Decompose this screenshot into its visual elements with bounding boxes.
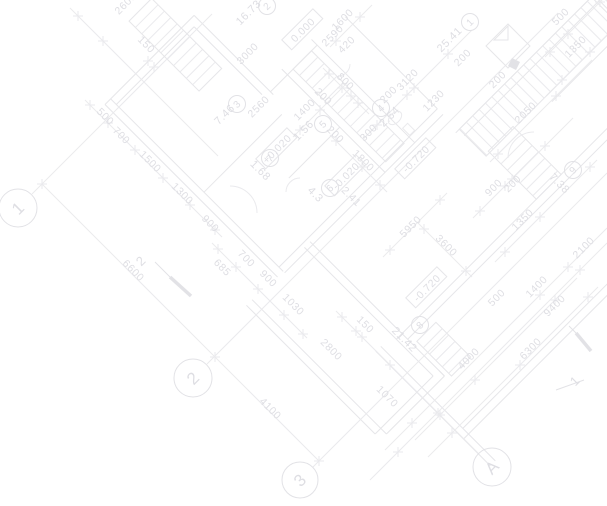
dimension-label: 6300 (518, 336, 545, 363)
plan-line (304, 247, 433, 376)
plan-line (370, 243, 607, 480)
room-area: 7.38 (546, 171, 571, 196)
grid-bubble-label: 1 (8, 198, 29, 219)
plan-line (105, 105, 278, 278)
dimension-ticks (37, 0, 605, 466)
dimension-label: 200 (502, 173, 524, 195)
plan-line (485, 103, 512, 130)
plan-line (466, 122, 493, 149)
elevation-value: 0.000 (289, 16, 318, 45)
elevation-mark: -0.720 (406, 267, 447, 308)
plan-line (526, 165, 551, 190)
plan-line (174, 43, 197, 66)
room-number: 1 (465, 17, 477, 29)
dimension-label: 9400 (542, 293, 569, 320)
dimension-label: 4100 (257, 396, 284, 423)
plan-line (170, 277, 191, 296)
dimension-label: 200 (452, 47, 474, 69)
elevation-mark: 0.000 (282, 9, 323, 50)
plan-line (479, 109, 506, 136)
shaft-flag-icon (494, 26, 508, 40)
plan-line (507, 146, 532, 171)
dimension-label: 3000 (235, 41, 262, 68)
dimension-label: 500 (550, 6, 572, 28)
plan-line (180, 49, 203, 72)
door-arc (508, 132, 534, 158)
rotated-plan-group (46, 0, 607, 506)
elevation-value: -0.720 (400, 143, 432, 175)
stair-hatching (459, 0, 607, 156)
plan-line (212, 243, 307, 338)
dimension-label: 900 (199, 213, 221, 235)
plan-line (463, 199, 607, 428)
plan-line (581, 8, 607, 35)
plan-line (32, 14, 212, 194)
room-area: 1.56 (291, 118, 316, 143)
plan-line (155, 262, 170, 277)
plan-line (428, 287, 598, 457)
elevation-value: -0.720 (411, 272, 443, 304)
door-arc (286, 178, 300, 192)
dimension-label: 1300 (169, 181, 196, 208)
plan-line (517, 71, 544, 98)
dimension-label: 900 (257, 268, 279, 290)
dimension-label: 1500 (137, 149, 164, 176)
blueprint-canvas: 2115026005007001500130090066004100685700… (0, 0, 607, 506)
floor-plan-drawing: 2115026005007001500130090066004100685700… (0, 0, 607, 506)
dimension-label: 2560 (246, 94, 273, 121)
elevation-marks: 0.000+0.020-0.020-0.720-0.720 (256, 9, 447, 308)
dimension-label: 1230 (421, 88, 448, 115)
door-arc (230, 186, 257, 213)
room-number: 9 (568, 165, 580, 177)
plan-line (246, 305, 375, 434)
room-area: 25.41 (435, 25, 465, 55)
plan-line (494, 0, 607, 148)
dimension-label: 1070 (374, 384, 401, 411)
dimension-lines (42, 0, 607, 480)
plan-line (524, 65, 551, 92)
dimension-label: 900 (483, 177, 505, 199)
plan-line (148, 18, 171, 41)
plan-line (473, 116, 500, 143)
dimension-label: 500 (94, 106, 116, 128)
plan-line (473, 118, 573, 218)
dimension-label: 5950 (398, 214, 425, 241)
dimension-label: 1350 (510, 207, 537, 234)
plan-line (576, 333, 591, 351)
grid-bubble-label: 3 (290, 470, 311, 491)
room-area: 16.73 (234, 0, 264, 28)
dimension-label: 3600 (433, 233, 460, 260)
shaft-marker-icon (508, 58, 520, 70)
dimension-label: 1400 (292, 97, 319, 124)
dimension-label: 500 (486, 287, 508, 309)
dimension-label: 1400 (524, 274, 551, 301)
grid-bubbles: 123A (0, 189, 511, 498)
dimension-label: 2800 (318, 337, 345, 364)
grid-bubble-label: 2 (183, 368, 204, 389)
elevation-mark: -0.720 (395, 138, 436, 179)
room-area: 21.42 (389, 325, 419, 355)
plan-line (194, 15, 273, 94)
plan-line (494, 0, 607, 148)
plan-line (193, 62, 216, 85)
plan-line (511, 78, 538, 105)
stair-outline (459, 0, 607, 156)
plan-line (530, 59, 557, 86)
dimension-label: 2050 (513, 100, 540, 127)
plan-line (135, 5, 158, 28)
plan-line (460, 129, 487, 156)
plan-line (111, 99, 284, 272)
plan-line (142, 11, 165, 34)
plan-line (186, 56, 209, 79)
dimension-label: 685 (211, 257, 233, 279)
plan-line (520, 158, 545, 183)
dimension-label: 200 (487, 69, 509, 91)
dimension-label: 800 (334, 71, 356, 93)
plan-line (105, 15, 194, 104)
plan-line (161, 30, 184, 53)
room-area: 4.3 (305, 185, 326, 206)
dimension-label: 150 (135, 34, 157, 56)
